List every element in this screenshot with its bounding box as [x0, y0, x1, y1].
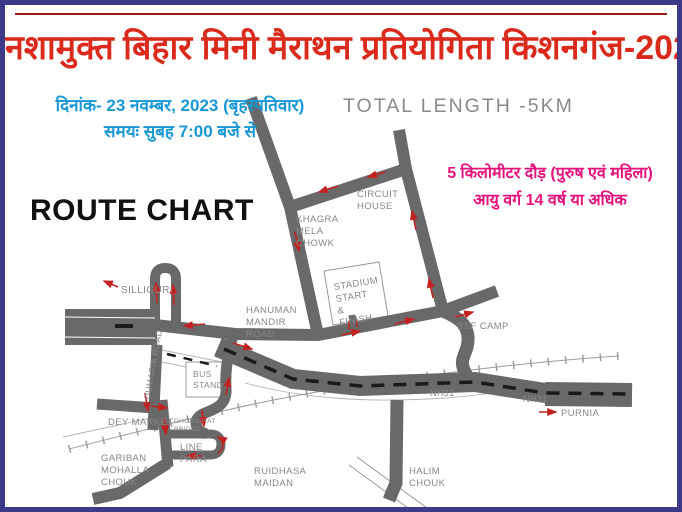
page-title: नशामुक्त बिहार मिनी मैराथन प्रतियोगिता क…	[5, 18, 677, 78]
label-nh31-east: NH31	[523, 394, 548, 404]
label-halim-1: HALIM	[409, 466, 440, 477]
top-red-rule	[15, 13, 667, 15]
label-gariban-1: GARIBAN	[101, 453, 147, 464]
label-gariban-3: CHOUK	[101, 477, 138, 488]
total-length-text: TOTAL LENGTH -5KM	[343, 95, 574, 118]
road-north-stub	[399, 130, 406, 169]
label-dhobighat-2: BRIDGE	[174, 426, 202, 433]
race-category-line2: आयु वर्ग 14 वर्ष या अधिक	[417, 188, 682, 210]
label-nh31-west: NH31	[430, 388, 455, 398]
label-bus-stand-1: BUS	[193, 369, 212, 379]
road-halim	[389, 400, 397, 500]
arrow-silliguri-icon	[104, 281, 118, 287]
event-time: समयः सुबह 7:00 बजे से	[15, 119, 345, 142]
label-gariban-2: MOHALLA	[101, 465, 149, 476]
label-circuit-house-2: HOUSE	[357, 201, 393, 212]
label-hanuman-3: ROAD	[246, 329, 275, 340]
event-date: दिनांक- 23 नवम्बर, 2023 (बृहस्पतिवार)	[15, 93, 345, 116]
label-purnia: PURNIA	[561, 408, 600, 419]
label-hanuman-2: MANDIR	[246, 317, 286, 328]
label-bsf-camp: BSF CAMP	[457, 321, 509, 332]
arrow-hairpin-right-icon	[173, 285, 174, 305]
label-ruidhasa-2: MAIDAN	[254, 478, 293, 489]
label-khagra-3: CHOWK	[296, 238, 335, 249]
label-hanuman-1: HANUMAN	[246, 305, 297, 316]
route-chart-heading: ROUTE CHART	[30, 194, 254, 228]
label-line-para-2: PARA	[180, 454, 207, 465]
label-dhobighat-1: DHOBIGHAT	[174, 418, 216, 425]
label-silliguri: SILLIGURI	[121, 285, 173, 296]
route-map: SILLIGURI CIRCUIT HOUSE KHAGRA MELA CHOW…	[5, 5, 682, 512]
label-ruidhasa-1: RUIDHASA	[254, 466, 307, 477]
label-khagra-2: MELA	[296, 226, 324, 237]
map-labels: SILLIGURI CIRCUIT HOUSE KHAGRA MELA CHOW…	[101, 189, 600, 489]
race-category-line1: 5 किलोमीटर दौड़ (पुरुष एवं महिला)	[417, 161, 682, 183]
road-line-para	[162, 400, 168, 467]
label-halim-2: CHOUK	[409, 478, 446, 489]
label-circuit-house-1: CIRCUIT	[357, 189, 398, 200]
label-bus-stand-2: STAND	[193, 380, 223, 390]
marathon-route-poster: SILLIGURI CIRCUIT HOUSE KHAGRA MELA CHOW…	[0, 0, 682, 512]
label-khagra-1: KHAGRA	[296, 214, 339, 225]
label-line-para-1: LINE	[180, 442, 203, 453]
label-dey-market: DEY MARKET	[108, 417, 174, 428]
